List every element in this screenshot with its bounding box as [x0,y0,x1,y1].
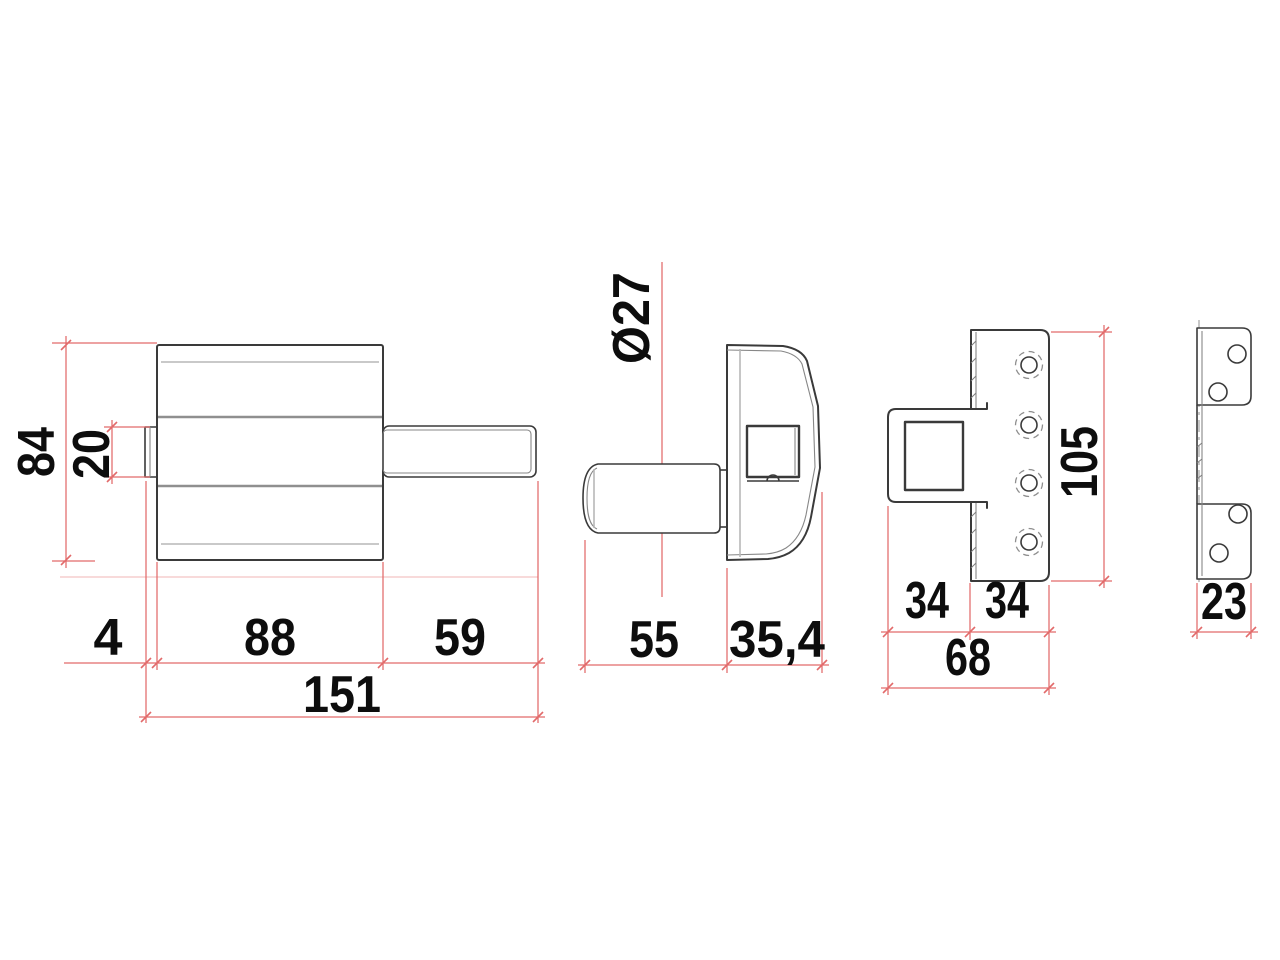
dim-label-59: 59 [434,609,486,667]
dim-label-4: 4 [94,609,123,667]
lock-body-outline [157,345,383,560]
strike-plate-front-view [888,330,1049,581]
lock-front-view [145,345,536,560]
dim-label-105: 105 [1051,426,1109,498]
dim-label-34-right: 34 [985,572,1029,630]
drawing-page: 84 20 4 88 59 151 Ø27 55 35,4 34 34 68 1… [0,0,1280,960]
lock-case-outline [727,345,820,560]
technical-drawing-canvas: 84 20 4 88 59 151 Ø27 55 35,4 34 34 68 1… [0,0,1280,960]
dim-label-34-left: 34 [905,572,949,630]
dim-label-84: 84 [8,427,66,477]
bottom-tab [1197,504,1251,579]
dim-label-23: 23 [1201,573,1247,631]
bolt-cylinder [583,464,720,533]
rear-boss [145,427,157,477]
mounting-bracket [888,403,987,508]
dim-label-diameter-27: Ø27 [603,272,661,364]
dim-label-20: 20 [63,429,121,479]
dim-label-88: 88 [244,609,296,667]
dim-label-151: 151 [303,666,381,724]
top-tab [1197,328,1251,405]
bolt-shaft [383,426,536,477]
strike-plate-side-view [1197,320,1251,586]
dim-label-68: 68 [945,629,991,687]
lock-body-surface-lines [158,362,382,544]
dim-label-35-4: 35,4 [729,611,825,669]
dim-label-55: 55 [629,611,679,669]
